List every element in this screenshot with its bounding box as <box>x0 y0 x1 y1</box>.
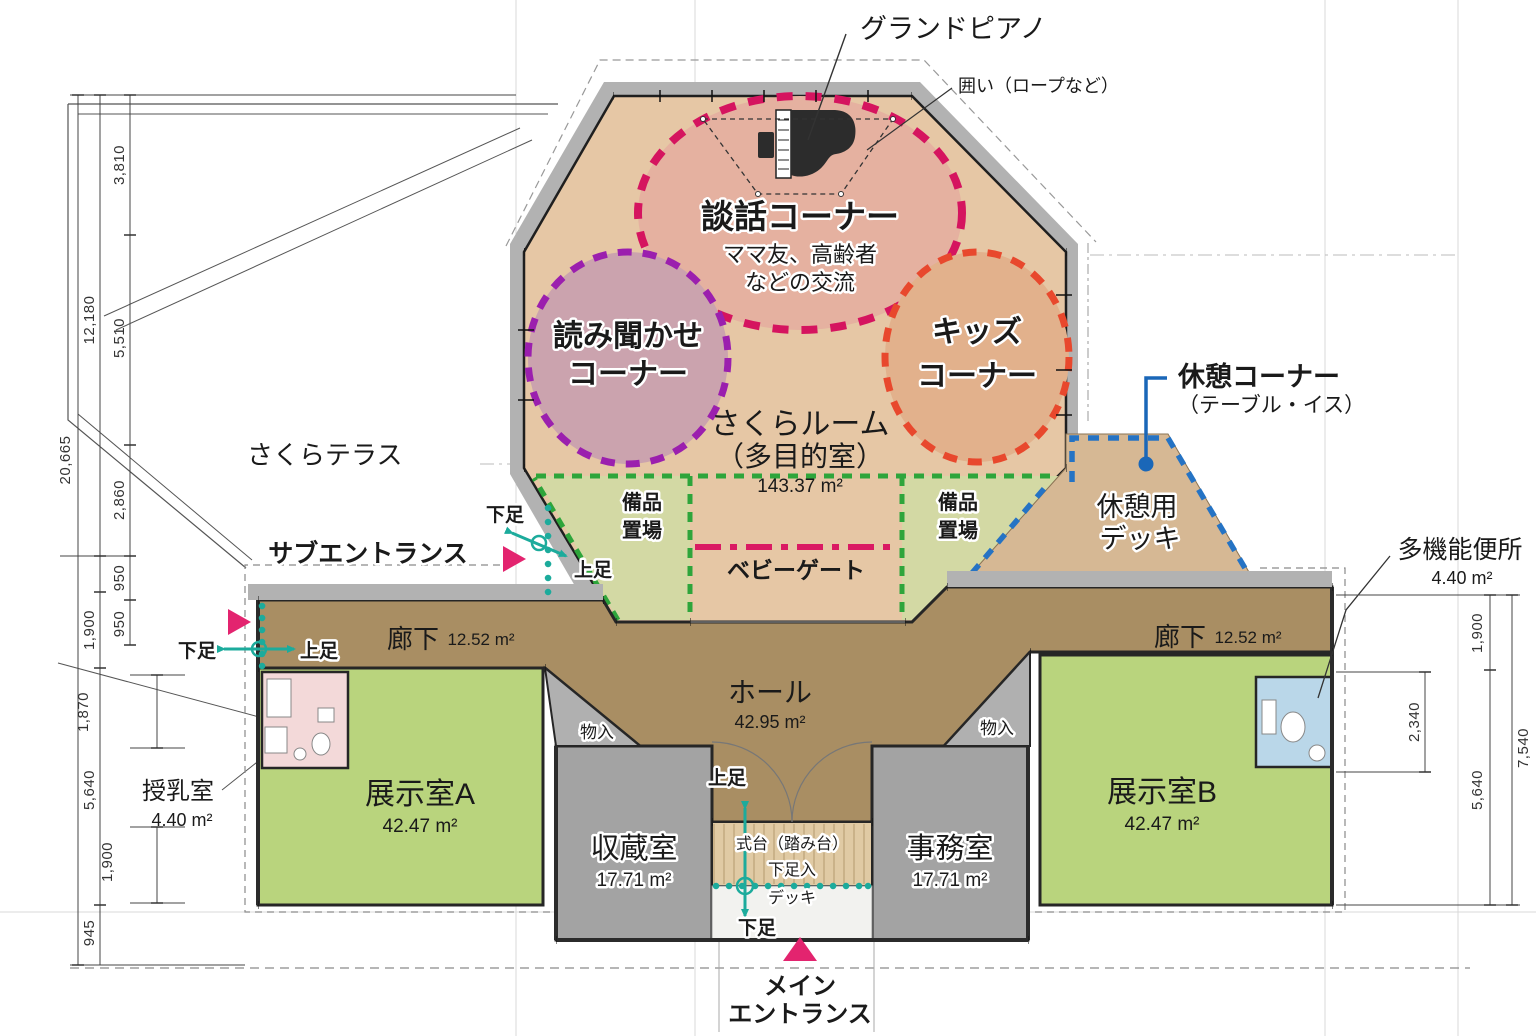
kids-corner-circle <box>885 252 1069 462</box>
dim-left-950b: 950 <box>111 611 128 638</box>
nursing-sink <box>265 727 287 753</box>
sub-entrance-label: サブエントランス <box>268 539 468 568</box>
rest-deck-label-1: 休憩用 <box>1097 492 1178 522</box>
dim-right-2340: 2,340 <box>1406 702 1423 742</box>
grand-piano-label: グランドピアノ <box>860 14 1047 44</box>
floor-plan-svg: グランドピアノ 囲い（ロープなど） 談話コーナー ママ友、高齢者 などの交流 読… <box>0 0 1536 1036</box>
enclosure-label: 囲い（ロープなど） <box>958 76 1119 96</box>
dim-left-3810: 3,810 <box>111 145 128 185</box>
rope-post <box>839 192 844 197</box>
dim-left-950a: 950 <box>111 565 128 592</box>
dim-left-5510: 5,510 <box>111 318 128 358</box>
sakura-room-label-1: さくらルーム <box>710 408 889 441</box>
rope-post <box>756 192 761 197</box>
dim-left-20665: 20,665 <box>57 436 74 485</box>
nursing-label: 授乳室 <box>142 778 214 805</box>
shoes-off-label-sub: 下足 <box>486 504 525 526</box>
rest-corner-label-1: 休憩コーナー <box>1177 361 1340 392</box>
dim-left-2860: 2,860 <box>111 480 128 520</box>
main-entrance-label-1: メイン <box>764 973 836 1000</box>
corridor-left-area: 12.52 m² <box>447 630 514 649</box>
rope-post <box>891 117 896 122</box>
hall-area: 42.95 m² <box>734 712 805 732</box>
equipment-right-label-2: 置場 <box>938 519 978 542</box>
exhibit-b-area: 42.47 m² <box>1125 814 1200 835</box>
storage-label: 収蔵室 <box>590 832 677 865</box>
corridor-left-label: 廊下 <box>387 624 439 654</box>
kids-label-1: キッズ <box>932 315 1022 349</box>
shoes-on-label-west: 上足 <box>300 640 339 662</box>
shoe-cabinet-label: 下足入 <box>768 862 816 879</box>
toilet-area: 4.40 m² <box>1431 568 1492 588</box>
toilet-sink <box>1309 745 1325 761</box>
corridor-right-area: 12.52 m² <box>1214 628 1281 647</box>
shoes-off-label-main: 下足 <box>738 917 777 939</box>
office-area: 17.71 m² <box>913 870 988 891</box>
closet-left-label: 物入 <box>580 723 614 742</box>
rope-post <box>701 117 706 122</box>
nursing-toilet <box>312 733 330 755</box>
rest-corner-leader-dot <box>1139 457 1154 472</box>
dim-left-1900b: 1,900 <box>99 842 116 882</box>
terrace-label: さくらテラス <box>247 440 402 470</box>
toilet-label: 多機能便所 <box>1397 536 1522 564</box>
nursing-tank <box>318 708 334 722</box>
danwa-sub-label-1: ママ友、高齢者 <box>723 242 877 267</box>
shoes-on-label-sub: 上足 <box>574 559 613 581</box>
nursing-bench <box>267 679 291 717</box>
dim-left-1870: 1,870 <box>75 692 92 732</box>
dim-right-5640: 5,640 <box>1469 770 1486 810</box>
dim-left-945: 945 <box>81 920 98 947</box>
toilet-counter <box>1262 700 1276 734</box>
equipment-left-label-1: 備品 <box>622 490 662 514</box>
eaves-band-right <box>947 571 1332 587</box>
hall-label: ホール <box>728 677 812 708</box>
exhibit-a-area: 42.47 m² <box>383 816 458 837</box>
exhibit-b-label: 展示室B <box>1107 776 1217 809</box>
storage-area: 17.71 m² <box>597 870 672 891</box>
piano-bench <box>758 132 774 158</box>
equipment-right-label-1: 備品 <box>938 490 978 514</box>
rest-deck-label-2: デッキ <box>1100 524 1181 554</box>
equipment-left-label-2: 置場 <box>622 519 662 542</box>
sakura-room-area: 143.37 m² <box>757 476 843 497</box>
danwa-sub-label-2: などの交流 <box>745 270 855 295</box>
dim-left-1900a: 1,900 <box>81 610 98 650</box>
sakura-room-label-2: （多目的室） <box>716 441 884 472</box>
main-entrance-label-2: エントランス <box>728 1001 872 1028</box>
kids-label-2: コーナー <box>917 360 1037 393</box>
corridor-right-label: 廊下 <box>1154 622 1206 652</box>
yomikikase-label-1: 読み聞かせ <box>553 319 703 353</box>
shoes-on-label-main: 上足 <box>708 767 747 789</box>
step-platform-label: 式台（踏み台） <box>736 835 848 853</box>
toilet-bowl <box>1281 712 1305 742</box>
dim-left-12180: 12,180 <box>81 296 98 345</box>
dim-left-5640: 5,640 <box>81 770 98 810</box>
floor-plan-page: グランドピアノ 囲い（ロープなど） 談話コーナー ママ友、高齢者 などの交流 読… <box>0 0 1536 1036</box>
baby-gate-label: ベビーゲート <box>727 557 865 583</box>
closet-right-label: 物入 <box>980 719 1014 738</box>
shoes-off-label-west: 下足 <box>178 640 217 662</box>
office-label: 事務室 <box>906 832 993 865</box>
nursing-area: 4.40 m² <box>151 810 212 830</box>
nursing-stool <box>294 748 306 760</box>
small-deck-label: デッキ <box>768 888 816 907</box>
rest-corner-label-2: （テーブル・イス） <box>1178 394 1365 417</box>
danwa-corner-label: 談話コーナー <box>701 198 899 235</box>
exhibit-a-label: 展示室A <box>365 778 475 811</box>
dim-right-1900: 1,900 <box>1469 613 1486 653</box>
dim-right-7540: 7,540 <box>1515 728 1532 768</box>
yomikikase-label-2: コーナー <box>568 358 688 391</box>
